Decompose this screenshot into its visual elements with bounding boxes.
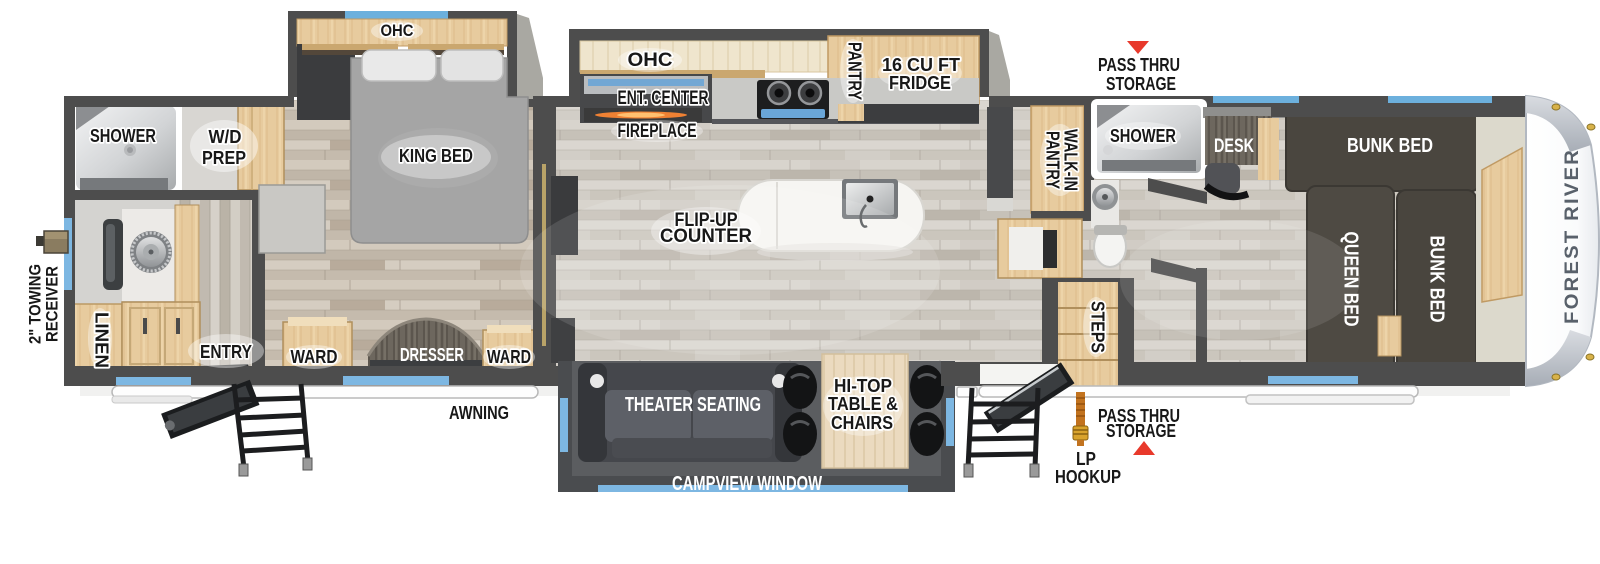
svg-text:STEPS: STEPS (1087, 301, 1107, 353)
svg-text:PANTRY: PANTRY (844, 42, 864, 100)
svg-text:ENT. CENTER: ENT. CENTER (618, 88, 709, 109)
svg-text:PASS THRU: PASS THRU (1098, 55, 1180, 75)
svg-text:STORAGE: STORAGE (1106, 421, 1176, 441)
svg-text:THEATER SEATING: THEATER SEATING (625, 394, 761, 416)
svg-text:SHOWER: SHOWER (1110, 126, 1176, 146)
svg-text:KING BED: KING BED (399, 146, 473, 166)
svg-text:HOOKUP: HOOKUP (1055, 467, 1121, 487)
svg-text:OHC: OHC (628, 50, 673, 71)
svg-text:WARD: WARD (487, 347, 531, 367)
svg-text:COUNTER: COUNTER (660, 226, 752, 247)
svg-text:OHC: OHC (381, 21, 414, 40)
svg-text:FRIDGE: FRIDGE (889, 73, 951, 93)
svg-text:WALK-IN: WALK-IN (1060, 129, 1080, 191)
svg-text:PREP: PREP (202, 148, 246, 168)
svg-text:W/D: W/D (209, 127, 242, 147)
svg-text:CAMPVIEW WINDOW: CAMPVIEW WINDOW (672, 473, 822, 495)
svg-text:PANTRY: PANTRY (1042, 131, 1062, 189)
svg-text:RECEIVER: RECEIVER (42, 266, 61, 342)
svg-text:FOREST RIVER: FOREST RIVER (1562, 148, 1583, 324)
svg-text:BUNK BED: BUNK BED (1426, 236, 1448, 323)
svg-text:AWNING: AWNING (449, 403, 509, 423)
svg-text:TABLE &: TABLE & (828, 394, 898, 414)
svg-text:LP: LP (1076, 449, 1096, 469)
svg-text:LINEN: LINEN (91, 312, 111, 368)
svg-text:DRESSER: DRESSER (400, 345, 464, 365)
svg-text:DESK: DESK (1214, 136, 1254, 157)
svg-text:BUNK BED: BUNK BED (1347, 135, 1433, 157)
svg-text:STORAGE: STORAGE (1106, 74, 1176, 94)
svg-text:CHAIRS: CHAIRS (831, 413, 893, 433)
svg-text:HI-TOP: HI-TOP (834, 376, 892, 396)
svg-text:16 CU FT: 16 CU FT (882, 55, 960, 75)
svg-text:ENTRY: ENTRY (200, 342, 252, 362)
svg-text:QUEEN BED: QUEEN BED (1340, 232, 1362, 327)
svg-text:WARD: WARD (291, 347, 338, 367)
svg-text:FIREPLACE: FIREPLACE (618, 121, 697, 142)
svg-text:SHOWER: SHOWER (90, 126, 156, 146)
